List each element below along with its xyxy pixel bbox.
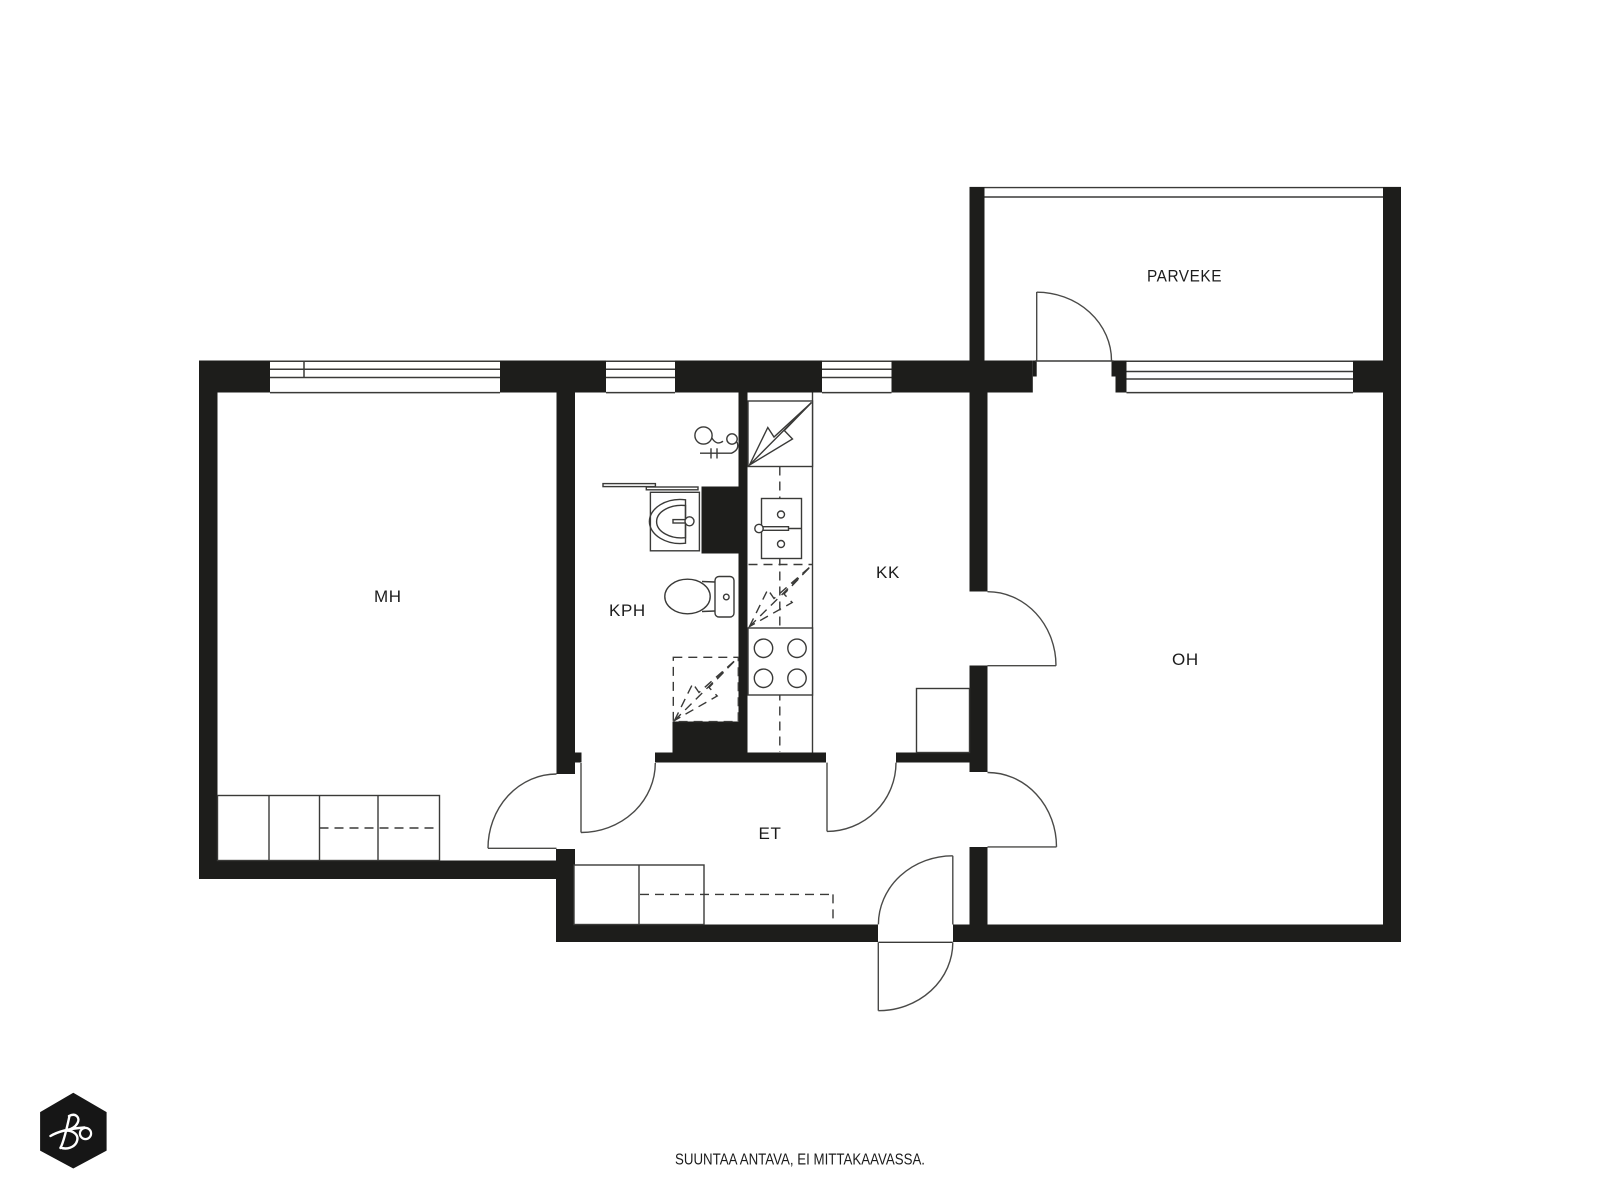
svg-text:SUUNTAA ANTAVA, EI MITTAKAAVAS: SUUNTAA ANTAVA, EI MITTAKAAVASSA. [675, 1152, 925, 1169]
svg-text:KK: KK [876, 563, 900, 582]
svg-text:OH: OH [1172, 650, 1199, 669]
svg-text:PARVEKE: PARVEKE [1147, 267, 1222, 286]
svg-text:ET: ET [759, 824, 782, 843]
svg-text:KPH: KPH [609, 601, 646, 620]
svg-text:MH: MH [374, 587, 402, 606]
